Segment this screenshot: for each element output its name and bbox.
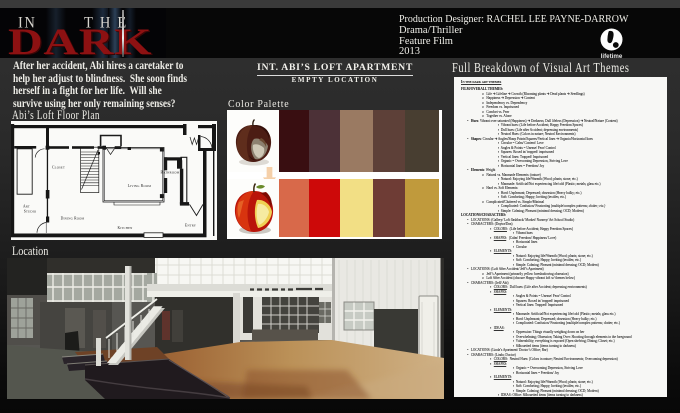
svg-text:CLOSET: CLOSET (52, 166, 65, 170)
svg-text:STUDIO: STUDIO (24, 209, 37, 213)
svg-text:ENTRY: ENTRY (185, 224, 197, 228)
svg-text:KITCHEN: KITCHEN (117, 226, 133, 230)
svg-text:BATHROOM: BATHROOM (161, 170, 180, 174)
svg-text:DINING ROOM: DINING ROOM (61, 217, 85, 221)
svg-text:LIVING ROOM: LIVING ROOM (128, 184, 151, 188)
svg-text:ART: ART (23, 205, 30, 209)
